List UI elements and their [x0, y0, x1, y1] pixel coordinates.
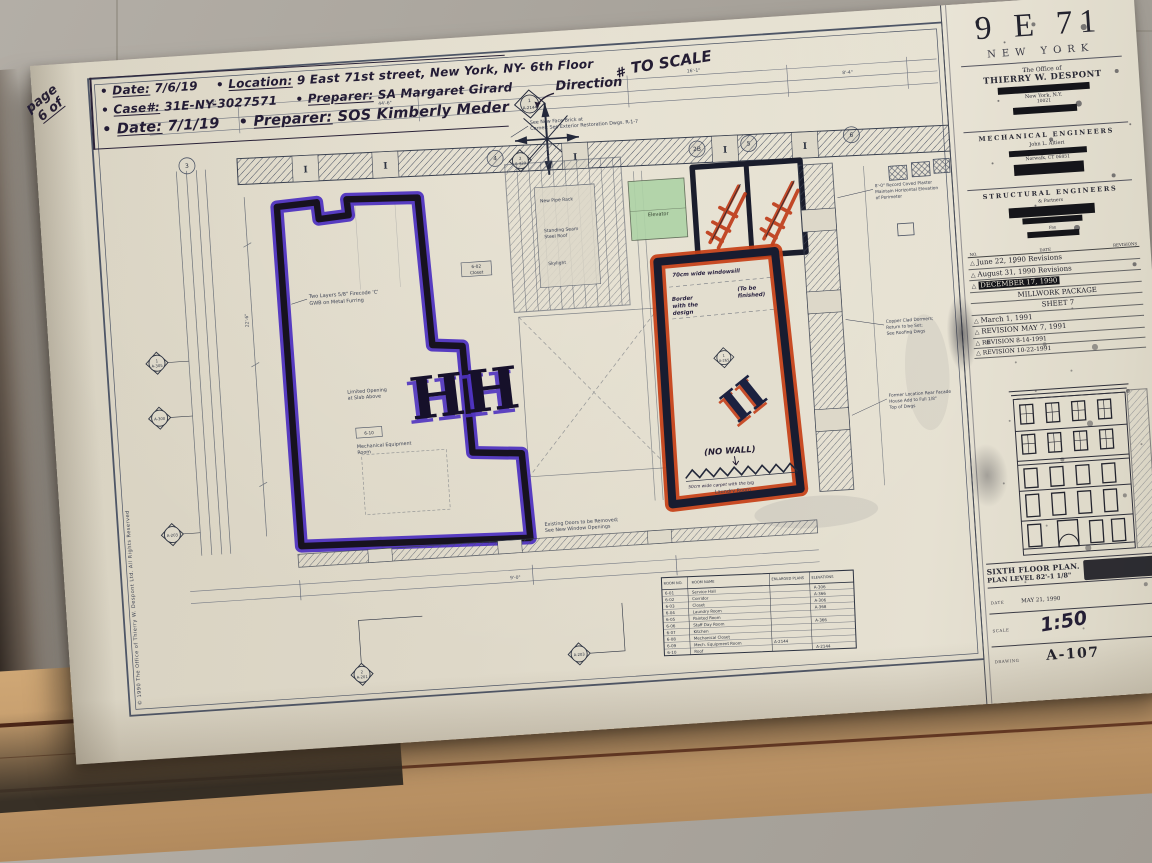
schedule-cell: Kitchen — [693, 629, 709, 635]
hash-rooms — [692, 160, 806, 259]
revision-triangle-icon: △ — [970, 259, 975, 268]
date2-value: 7/1/19 — [167, 116, 220, 135]
schedule-cell: Corridor — [692, 595, 709, 601]
page-number-note: page 6 of — [24, 83, 70, 128]
bullet: • — [295, 92, 304, 106]
schedule-cell: A-368 — [815, 604, 827, 609]
revision-triangle-icon: △ — [974, 316, 979, 325]
marker-ref: A-201 — [356, 674, 368, 680]
facade-windows — [1020, 399, 1126, 549]
schedule-cell: A-366 — [815, 617, 827, 622]
toner-smudge — [964, 442, 1010, 509]
schedule-cell: 6-09 — [667, 643, 677, 648]
bullet: • — [100, 84, 109, 98]
svg-text:I: I — [303, 165, 308, 175]
dim-text: 22'-6" — [244, 313, 251, 327]
rev-no-label: NO. — [969, 252, 977, 258]
room-tag-name: Closet — [470, 269, 484, 276]
schedule-header: ROOM NO. — [664, 581, 683, 586]
revision-triangle-icon: △ — [971, 282, 976, 291]
room-tag-number: 6-10 — [364, 430, 374, 436]
schedule-cell: 6-06 — [666, 623, 676, 628]
location-label: Location: — [228, 74, 293, 92]
west-wall-lines — [176, 167, 271, 556]
svg-text:I: I — [723, 146, 728, 156]
marker-number: 1 — [722, 354, 725, 358]
revision-triangle-icon: △ — [974, 328, 979, 337]
section-markers-bottom — [347, 603, 626, 686]
scale-field-label: SCALE — [992, 627, 1009, 633]
direction-note: Direction — [555, 75, 623, 94]
schedule-cell: A-306 — [814, 584, 826, 589]
case-label: Case#: — [113, 100, 160, 117]
revision-text: SHEET 7 — [1042, 298, 1075, 308]
revision-triangle-icon: △ — [971, 270, 976, 279]
scale-field-value: 1:50 — [1038, 607, 1088, 637]
date-field-value: MAY 21, 1990 — [1021, 596, 1061, 605]
structural-engineers-block: STRUCTURAL ENGINEERS & Partners Fax — [959, 179, 1143, 244]
date-value: 7/6/19 — [154, 79, 198, 95]
preparer-label: Preparer: — [307, 88, 373, 106]
svg-text:I: I — [803, 142, 808, 152]
drawing-field-label: DRAWING — [994, 658, 1019, 665]
schedule-cell: 6-10 — [667, 650, 677, 655]
marker-ref: A-203 — [167, 532, 179, 538]
note-line: Skylight — [548, 260, 567, 267]
revision-text: March 1, 1991 — [980, 313, 1032, 324]
marker-ref: A-203 — [573, 651, 585, 657]
schedule-cell: A-2144 — [816, 643, 831, 649]
drawing-title-block: SIXTH FLOOR PLAN. PLAN LEVEL 82'-1 1/8" … — [986, 552, 1152, 674]
schedule-cell: 6-07 — [666, 630, 676, 635]
facade-elevation — [1004, 374, 1152, 562]
schedule-cell: Service Hall — [692, 589, 716, 595]
bullet: • — [102, 122, 112, 139]
schedule-cell: A-2144 — [774, 639, 789, 645]
mechanical-engineers-block: MECHANICAL ENGINEERS John L. Altieri Nor… — [955, 121, 1139, 181]
schedule-cell: 6-05 — [666, 617, 676, 622]
section-markers-left — [144, 350, 201, 546]
dim-text: 8'-4" — [842, 69, 853, 76]
marker-ref: A-2144 — [523, 104, 538, 110]
schedule-cell: 6-08 — [667, 636, 677, 641]
svg-text:I: I — [383, 162, 388, 172]
room-tag-number: 6-02 — [471, 264, 481, 271]
hh-mark-text: HH — [406, 353, 523, 433]
note-line: Mechanical Equipment — [357, 441, 412, 451]
dim-text: 9'-0" — [510, 575, 521, 582]
date2-label: Date: — [117, 119, 163, 138]
revision-triangle-icon: △ — [976, 348, 981, 357]
revisions-table: NO. DATE REVISIONS △June 22, 1990 Revisi… — [967, 241, 1146, 359]
dim-text: 16'-1" — [687, 68, 701, 75]
marker-ref: A-300 — [154, 416, 166, 422]
roof-stair-block: New Pipe Rack Standing Seam Steel Roof S… — [505, 157, 631, 312]
note-line: Room — [357, 449, 371, 456]
facade-door-arch — [1058, 534, 1079, 547]
elevator-room: Elevator — [628, 178, 688, 241]
to-scale-note: TO SCALE — [630, 47, 714, 77]
blueprint-sheet: 5'-2" 44'-6" 16'-1" 8'-4" See New Face B… — [30, 0, 1152, 764]
schedule-cell: 6-01 — [665, 590, 675, 595]
marker-number: 1 — [528, 98, 531, 104]
date-label: Date: — [112, 82, 150, 98]
marker-ref: A-305 — [151, 363, 163, 369]
bullet: • — [238, 114, 248, 131]
facade-muntins — [1020, 399, 1114, 454]
brand-block: 9 E 71 NEW YORK The Office of THIERRY W.… — [948, 1, 1136, 120]
schedule-cell: A-306 — [814, 597, 826, 602]
bullet: • — [216, 77, 225, 91]
schedule-cell: 6-03 — [665, 603, 675, 608]
schedule-cell: 6-02 — [665, 597, 675, 602]
revision-triangle-icon: △ — [975, 338, 980, 347]
hh-mark: HH HH — [402, 353, 524, 438]
schedule-cell: 6-04 — [666, 610, 676, 615]
room-schedule-table: ROOM NO. ROOM NAME ENLARGED PLANS ELEVAT… — [661, 570, 856, 656]
rev-date-label: DATE — [1039, 247, 1051, 253]
schedule-cell: Closet — [692, 602, 705, 608]
grid-label: 3 — [185, 163, 189, 170]
preparer2-label: Preparer: — [253, 110, 333, 130]
closet-tag: 6-02 Closet — [461, 261, 492, 277]
bullet: • — [101, 102, 110, 116]
east-wall — [798, 161, 885, 492]
schedule-cell: A-366 — [814, 591, 826, 596]
schedule-cell: Roof — [694, 649, 704, 654]
sheet-number: A-107 — [1046, 644, 1100, 664]
date-field-label: DATE — [991, 600, 1005, 606]
marker-ref: A-265 — [719, 358, 730, 363]
